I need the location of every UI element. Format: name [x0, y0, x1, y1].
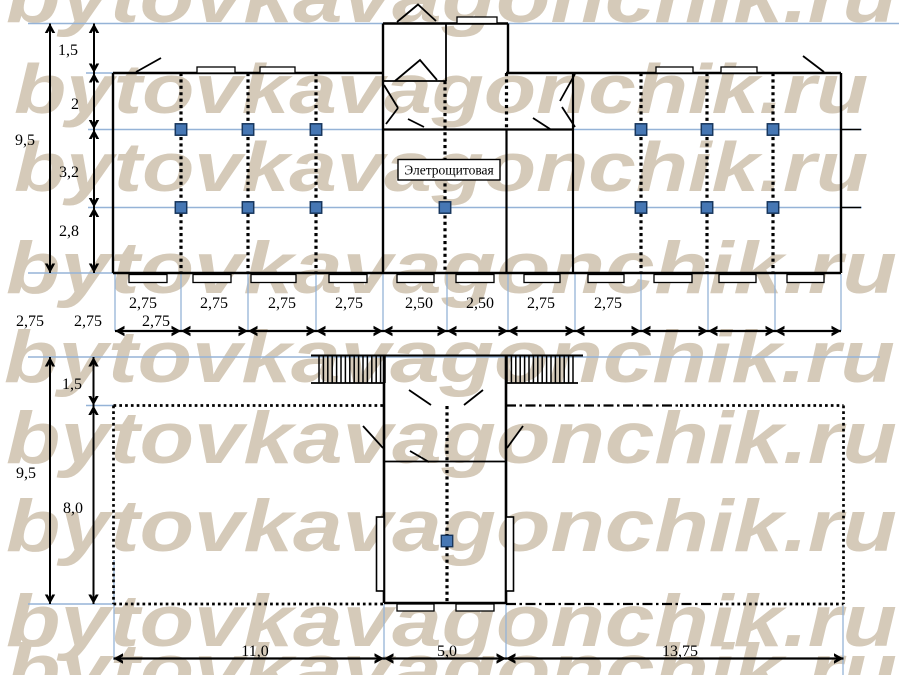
svg-text:2,75: 2,75	[142, 313, 170, 330]
svg-text:2,75: 2,75	[268, 295, 296, 312]
svg-text:9,5: 9,5	[15, 132, 35, 149]
svg-text:2,75: 2,75	[527, 295, 555, 312]
svg-text:2,75: 2,75	[594, 295, 622, 312]
svg-text:8,0: 8,0	[63, 500, 83, 517]
svg-text:1,5: 1,5	[62, 376, 82, 393]
svg-text:2,75: 2,75	[74, 313, 102, 330]
svg-text:2,75: 2,75	[129, 295, 157, 312]
svg-text:2,50: 2,50	[405, 295, 433, 312]
svg-text:5,0: 5,0	[437, 643, 457, 660]
svg-text:3,2: 3,2	[59, 164, 79, 181]
svg-text:13,75: 13,75	[662, 643, 698, 660]
svg-text:2,75: 2,75	[200, 295, 228, 312]
svg-text:11,0: 11,0	[241, 643, 268, 660]
svg-text:2,8: 2,8	[59, 223, 79, 240]
svg-text:2,75: 2,75	[335, 295, 363, 312]
svg-text:2: 2	[71, 96, 79, 113]
svg-text:Элетрощитовая: Элетрощитовая	[404, 163, 494, 178]
svg-text:1,5: 1,5	[58, 42, 78, 59]
svg-text:2,50: 2,50	[466, 295, 494, 312]
svg-text:9,5: 9,5	[16, 465, 36, 482]
svg-text:2,75: 2,75	[16, 313, 44, 330]
